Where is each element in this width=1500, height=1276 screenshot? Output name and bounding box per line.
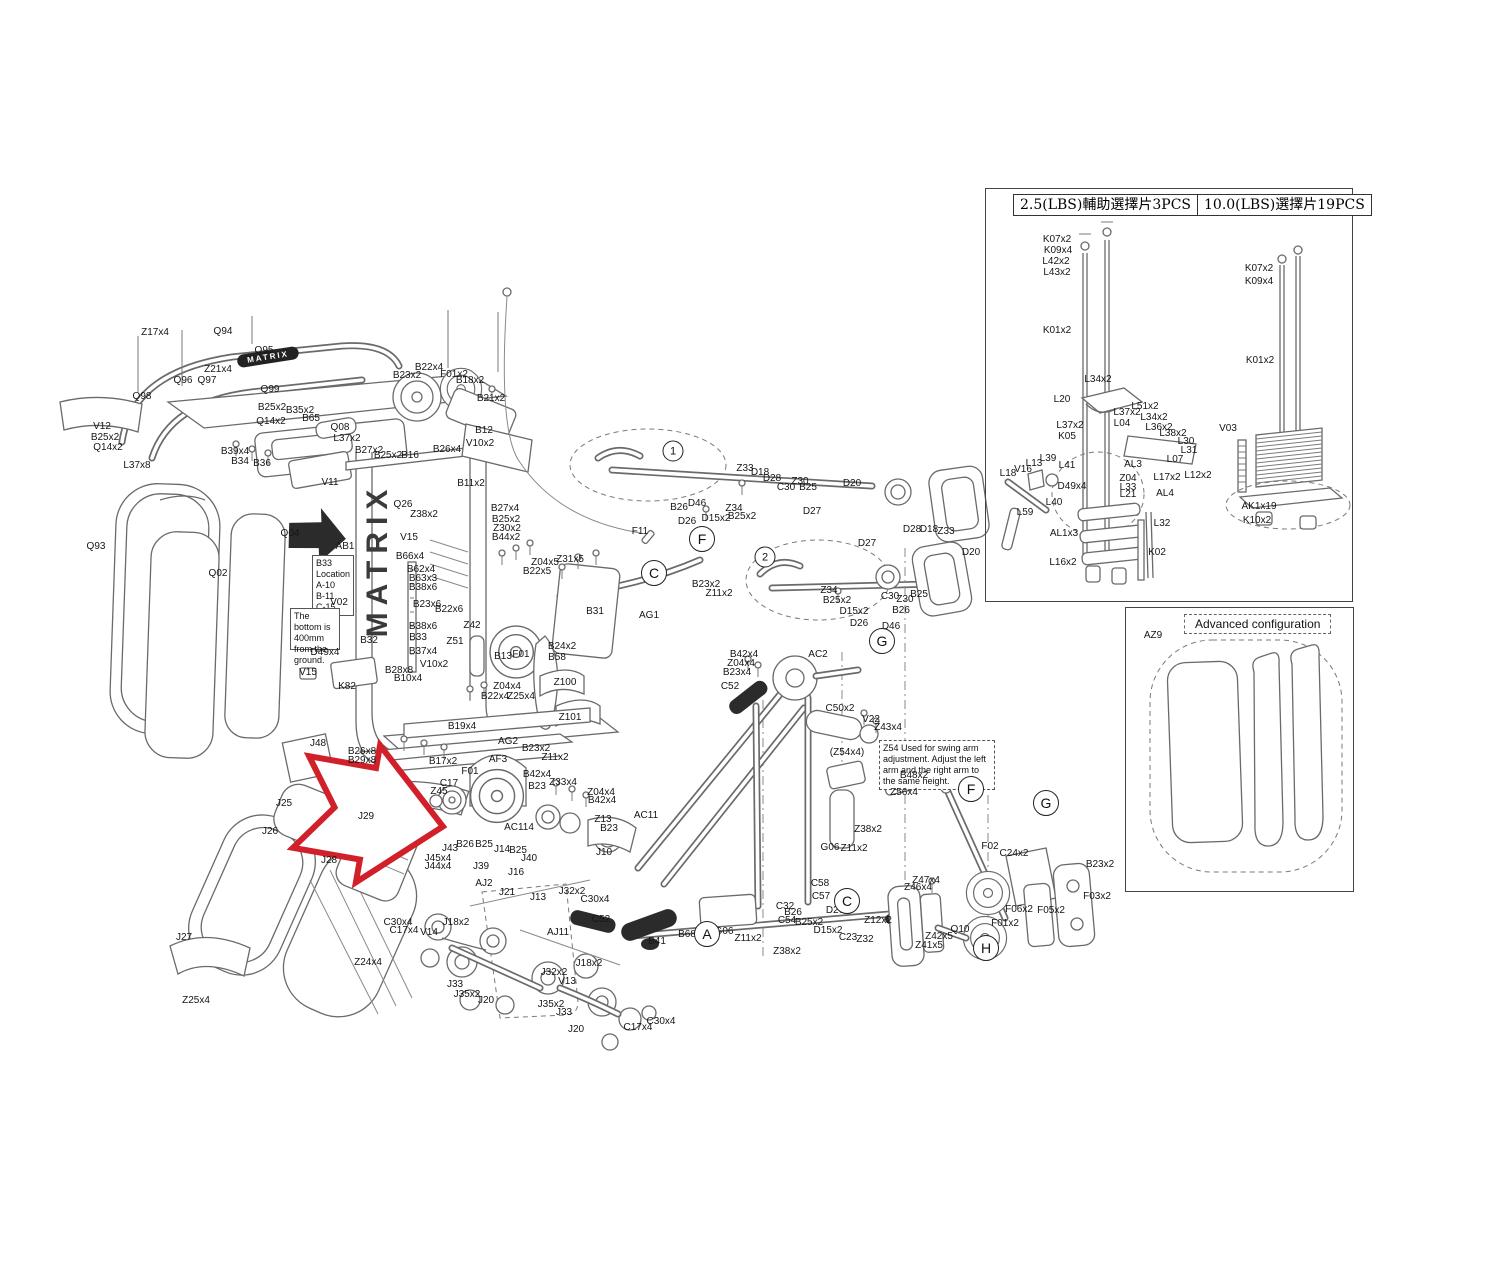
part-label-l20: L20 bbox=[1054, 395, 1071, 405]
part-label-l37x8: L37x8 bbox=[123, 461, 150, 471]
part-label-z46x4: Z46x4 bbox=[904, 883, 932, 893]
part-label-j10: J10 bbox=[596, 848, 612, 858]
part-label-b25: B25 bbox=[910, 590, 928, 600]
callout-1: 1 bbox=[663, 441, 684, 462]
part-label-j33: J33 bbox=[556, 1008, 572, 1018]
weight-stack-inset-box bbox=[985, 188, 1353, 602]
part-label-q94: Q94 bbox=[214, 327, 233, 337]
part-label-v13: V13 bbox=[558, 977, 576, 987]
part-label-al3: AL3 bbox=[1124, 460, 1142, 470]
part-label-f06x2: F06x2 bbox=[1005, 905, 1033, 915]
part-label-l32: L32 bbox=[1154, 519, 1171, 529]
part-label-f11: F11 bbox=[632, 527, 649, 537]
part-label-b42x4: B42x4 bbox=[588, 796, 616, 806]
part-label-d27: D27 bbox=[803, 507, 821, 517]
part-label-z43x4: Z43x4 bbox=[874, 723, 902, 733]
part-label-q93: Q93 bbox=[87, 542, 106, 552]
part-label-c30x4: C30x4 bbox=[581, 895, 610, 905]
part-label-b23: B23 bbox=[528, 782, 546, 792]
matrix-logo-tower: MATRIX bbox=[361, 483, 395, 638]
part-label-l59: L59 bbox=[1017, 508, 1034, 518]
part-label-q97: Q97 bbox=[198, 376, 217, 386]
part-label-ac114: AC114 bbox=[504, 823, 534, 833]
part-label-z45: Z45 bbox=[430, 787, 447, 797]
b33-note-line: B33 bbox=[316, 558, 350, 569]
part-label-az9: AZ9 bbox=[1144, 631, 1162, 641]
part-label-j16: J16 bbox=[508, 868, 524, 878]
part-label-j18x2: J18x2 bbox=[443, 918, 470, 928]
part-label-z31x5: Z31x5 bbox=[556, 555, 584, 565]
part-label-q04: Q04 bbox=[281, 529, 300, 539]
part-label-k09x4: K09x4 bbox=[1245, 277, 1273, 287]
part-label-l12x2: L12x2 bbox=[1184, 471, 1211, 481]
part-label-f05x2: F05x2 bbox=[1037, 906, 1065, 916]
part-label-k10x2: K10x2 bbox=[1243, 516, 1271, 526]
part-label-b36: B36 bbox=[253, 459, 271, 469]
part-label-l41: L41 bbox=[1059, 461, 1076, 471]
part-label-ac2: AC2 bbox=[808, 650, 827, 660]
part-label-z42: Z42 bbox=[463, 621, 480, 631]
part-label-d20: D20 bbox=[843, 479, 861, 489]
part-label-z101: Z101 bbox=[559, 713, 582, 723]
part-label-b23x2: B23x2 bbox=[1086, 860, 1114, 870]
part-label-j28: J28 bbox=[321, 856, 337, 866]
part-label-c58: C58 bbox=[811, 879, 829, 889]
part-label-j20: J20 bbox=[568, 1025, 584, 1035]
part-label-j35x2: J35x2 bbox=[454, 990, 481, 1000]
part-label-c17x4: C17x4 bbox=[390, 926, 419, 936]
part-label-j14: J14 bbox=[494, 845, 510, 855]
part-label-j26: J26 bbox=[262, 827, 278, 837]
part-label-l17x2: L17x2 bbox=[1153, 473, 1180, 483]
part-label-b22x4: B22x4 bbox=[481, 692, 509, 702]
part-label-j29: J29 bbox=[358, 812, 374, 822]
part-label-b11x2: B11x2 bbox=[457, 479, 485, 489]
part-label-k07x2: K07x2 bbox=[1245, 264, 1273, 274]
part-label-k01x2: K01x2 bbox=[1043, 326, 1071, 336]
part-label-q95: Q95 bbox=[255, 346, 274, 356]
part-label-j44x4: J44x4 bbox=[425, 862, 452, 872]
part-label-l16x2: L16x2 bbox=[1049, 558, 1076, 568]
part-label-l37x2: L37x2 bbox=[1113, 408, 1140, 418]
part-label-z100: Z100 bbox=[554, 678, 577, 688]
part-label-f03x2: F03x2 bbox=[1083, 892, 1111, 902]
part-label-c52: C52 bbox=[721, 682, 739, 692]
part-label-v12: V12 bbox=[93, 422, 111, 432]
part-label-f02: F02 bbox=[981, 842, 998, 852]
part-label-b25x2: B25x2 bbox=[728, 512, 756, 522]
part-label-b34: B34 bbox=[231, 457, 249, 467]
part-label-b21x2: B21x2 bbox=[477, 394, 505, 404]
inset-header-left: 2.5(LBS)輔助選擇片3PCS bbox=[1013, 194, 1198, 216]
part-label-f01: F01 bbox=[512, 650, 529, 660]
part-label-d26: D26 bbox=[678, 517, 696, 527]
part-label-b23: B23 bbox=[600, 824, 618, 834]
b33-note-line: A-10 bbox=[316, 580, 350, 591]
part-label-b13: B13 bbox=[494, 652, 512, 662]
part-label-l34x2: L34x2 bbox=[1084, 375, 1111, 385]
callout-c: C bbox=[834, 888, 860, 914]
part-label-v14: V14 bbox=[420, 928, 438, 938]
callout-a: A bbox=[694, 921, 720, 947]
part-label-d20: D20 bbox=[962, 548, 980, 558]
part-label-v16: V16 bbox=[1014, 465, 1032, 475]
part-label-ag1: AG1 bbox=[639, 611, 659, 621]
part-label-c23: C23 bbox=[839, 933, 857, 943]
part-label-d49x4: D49x4 bbox=[311, 648, 340, 658]
part-label-j21: J21 bbox=[499, 888, 515, 898]
part-label-v02: V02 bbox=[330, 598, 348, 608]
part-label-v15: V15 bbox=[400, 533, 418, 543]
part-label-j40: J40 bbox=[521, 854, 537, 864]
part-label-v11: V11 bbox=[321, 478, 338, 488]
part-label-b65: B65 bbox=[302, 414, 320, 424]
part-label-k02: K02 bbox=[1148, 548, 1166, 558]
part-label-k09x4: K09x4 bbox=[1044, 246, 1072, 256]
part-label-c57: C57 bbox=[812, 892, 830, 902]
callout-c: C bbox=[641, 560, 667, 586]
callout-2: 2 bbox=[755, 547, 776, 568]
part-label-b26: B26 bbox=[892, 606, 910, 616]
part-label-f01x2: F01x2 bbox=[991, 919, 1019, 929]
part-label-(z54x4): (Z54x4) bbox=[830, 748, 864, 758]
part-label-d46: D46 bbox=[688, 499, 706, 509]
part-label-j25: J25 bbox=[276, 799, 292, 809]
part-label-b26: B26 bbox=[670, 503, 688, 513]
part-label-z25x4: Z25x4 bbox=[507, 692, 535, 702]
callout-h: H bbox=[973, 935, 999, 961]
part-label-z32: Z32 bbox=[856, 935, 873, 945]
part-label-b31: B31 bbox=[586, 607, 604, 617]
part-label-b25x2: B25x2 bbox=[374, 451, 402, 461]
part-label-d27: D27 bbox=[858, 539, 876, 549]
part-label-q14x2: Q14x2 bbox=[93, 443, 122, 453]
part-label-z51: Z51 bbox=[446, 637, 463, 647]
part-label-b22x6: B22x6 bbox=[435, 605, 463, 615]
part-label-d26: D26 bbox=[850, 619, 868, 629]
part-label-l43x2: L43x2 bbox=[1043, 268, 1070, 278]
part-label-b26: B26 bbox=[456, 840, 474, 850]
part-label-q99: Q99 bbox=[261, 385, 280, 395]
part-label-z25x4: Z25x4 bbox=[182, 996, 210, 1006]
part-label-v03: V03 bbox=[1219, 424, 1237, 434]
part-label-q08: Q08 bbox=[331, 423, 350, 433]
part-label-c52: C52 bbox=[592, 915, 610, 925]
part-label-b58: B58 bbox=[548, 653, 566, 663]
exploded-parts-diagram: 2.5(LBS)輔助選擇片3PCS 10.0(LBS)選擇片19PCS Adva… bbox=[0, 0, 1500, 1276]
part-label-q98: Q98 bbox=[133, 392, 152, 402]
callout-f: F bbox=[958, 776, 984, 802]
part-label-b26x4: B26x4 bbox=[433, 445, 461, 455]
part-label-g06: G06 bbox=[821, 843, 840, 853]
part-label-af3: AF3 bbox=[489, 755, 507, 765]
part-label-z38x2: Z38x2 bbox=[410, 510, 438, 520]
part-label-v10x2: V10x2 bbox=[466, 439, 494, 449]
part-label-j27: J27 bbox=[176, 933, 192, 943]
part-label-l40: L40 bbox=[1046, 498, 1063, 508]
part-label-ac11: AC11 bbox=[634, 811, 658, 821]
part-label-c54: C54 bbox=[778, 916, 796, 926]
part-label-b23x2: B23x2 bbox=[393, 371, 421, 381]
part-label-z33: Z33 bbox=[937, 527, 954, 537]
part-label-b18x2: B18x2 bbox=[456, 376, 484, 386]
part-label-l04: L04 bbox=[1114, 419, 1131, 429]
part-label-b12: B12 bbox=[475, 426, 493, 436]
shroud-panels-art bbox=[109, 482, 286, 759]
part-label-b17x2: B17x2 bbox=[429, 757, 457, 767]
part-label-b66x4: B66x4 bbox=[396, 552, 424, 562]
part-label-b23x4: B23x4 bbox=[723, 668, 751, 678]
part-label-d28: D28 bbox=[903, 525, 921, 535]
part-label-z11x2: Z11x2 bbox=[840, 844, 867, 854]
part-label-l21: L21 bbox=[1120, 490, 1137, 500]
part-label-b41: B41 bbox=[648, 937, 666, 947]
part-label-z24x4: Z24x4 bbox=[354, 958, 382, 968]
part-label-d15x2: D15x2 bbox=[840, 607, 869, 617]
part-label-l07: L07 bbox=[1167, 455, 1184, 465]
part-label-z21x4: Z21x4 bbox=[204, 365, 232, 375]
part-label-z11x2: Z11x2 bbox=[734, 934, 761, 944]
part-label-z56x4: Z56x4 bbox=[890, 788, 918, 798]
part-label-z11x2: Z11x2 bbox=[705, 589, 732, 599]
part-label-b16: B16 bbox=[401, 451, 419, 461]
part-label-b44x2: B44x2 bbox=[492, 533, 520, 543]
part-label-q10: Q10 bbox=[951, 925, 970, 935]
part-label-z33x4: Z33x4 bbox=[549, 778, 577, 788]
part-label-b10x4: B10x4 bbox=[394, 674, 422, 684]
part-label-d49x4: D49x4 bbox=[1058, 482, 1087, 492]
part-label-b33: B33 bbox=[409, 633, 427, 643]
inset-header-right: 10.0(LBS)選擇片19PCS bbox=[1197, 194, 1372, 216]
part-label-j20: J20 bbox=[478, 996, 494, 1006]
part-label-b38x6: B38x6 bbox=[409, 583, 437, 593]
part-label-c17x4: C17x4 bbox=[624, 1023, 653, 1033]
part-label-l18: L18 bbox=[1000, 469, 1017, 479]
advanced-config-box bbox=[1125, 607, 1354, 892]
part-label-b37x4: B37x4 bbox=[409, 647, 437, 657]
part-label-ak1x19: AK1x19 bbox=[1241, 502, 1276, 512]
part-label-b19x4: B19x4 bbox=[448, 722, 476, 732]
part-label-b32: B32 bbox=[360, 636, 378, 646]
part-label-v10x2: V10x2 bbox=[420, 660, 448, 670]
part-label-c24x2: C24x2 bbox=[1000, 849, 1029, 859]
part-label-b25: B25 bbox=[475, 840, 493, 850]
b33-note-line: Location bbox=[316, 569, 350, 580]
part-label-ab1: AB1 bbox=[336, 542, 355, 552]
part-label-q02: Q02 bbox=[209, 569, 228, 579]
part-label-al1x3: AL1x3 bbox=[1050, 529, 1078, 539]
part-label-j39: J39 bbox=[473, 862, 489, 872]
part-label-f01: F01 bbox=[461, 767, 478, 777]
part-label-b48x2: B48x2 bbox=[900, 771, 928, 781]
part-label-aj2: AJ2 bbox=[475, 879, 492, 889]
part-label-b29x8: B29x8 bbox=[348, 756, 376, 766]
cable-art bbox=[503, 288, 655, 544]
part-label-k07x2: K07x2 bbox=[1043, 235, 1071, 245]
part-label-al4: AL4 bbox=[1156, 489, 1174, 499]
callout-g: G bbox=[869, 628, 895, 654]
part-label-l37x2: L37x2 bbox=[1056, 421, 1083, 431]
part-label-z38x2: Z38x2 bbox=[773, 947, 801, 957]
part-label-b38x6: B38x6 bbox=[409, 622, 437, 632]
part-label-q96: Q96 bbox=[174, 376, 193, 386]
callout-f: F bbox=[689, 526, 715, 552]
part-label-j13: J13 bbox=[530, 893, 546, 903]
part-label-q14x2: Q14x2 bbox=[256, 417, 285, 427]
part-label-b27x4: B27x4 bbox=[491, 504, 519, 514]
part-label-z41x5: Z41x5 bbox=[915, 941, 943, 951]
part-label-v15: V15 bbox=[299, 668, 317, 678]
callout-g: G bbox=[1033, 790, 1059, 816]
advanced-config-title: Advanced configuration bbox=[1184, 614, 1331, 634]
part-label-j48: J48 bbox=[310, 739, 326, 749]
part-label-l42x2: L42x2 bbox=[1042, 257, 1069, 267]
part-label-aj11: AJ11 bbox=[547, 928, 569, 938]
part-label-c50x2: C50x2 bbox=[826, 704, 855, 714]
part-label-k01x2: K01x2 bbox=[1246, 356, 1274, 366]
part-label-k82: K82 bbox=[338, 682, 356, 692]
part-label-b42x4: B42x4 bbox=[523, 770, 551, 780]
part-label-b25: B25 bbox=[799, 483, 817, 493]
part-label-z11x2: Z11x2 bbox=[541, 753, 568, 763]
part-label-ag2: AG2 bbox=[498, 737, 518, 747]
bottom-height-note: The bottom is 400mm from the ground. bbox=[290, 608, 340, 650]
part-label-b22x5: B22x5 bbox=[523, 567, 551, 577]
part-label-b24x2: B24x2 bbox=[548, 642, 576, 652]
part-label-d15x2: D15x2 bbox=[702, 514, 731, 524]
part-label-b25x2: B25x2 bbox=[823, 596, 851, 606]
part-label-b25x2: B25x2 bbox=[258, 403, 286, 413]
part-label-z38x2: Z38x2 bbox=[854, 825, 882, 835]
part-label-l37x2: L37x2 bbox=[333, 434, 360, 444]
part-label-z12x2: Z12x2 bbox=[864, 916, 892, 926]
part-label-d18: D18 bbox=[920, 525, 938, 535]
part-label-j18x2: J18x2 bbox=[576, 959, 603, 969]
part-label-k05: K05 bbox=[1058, 432, 1076, 442]
part-label-z17x4: Z17x4 bbox=[141, 328, 169, 338]
